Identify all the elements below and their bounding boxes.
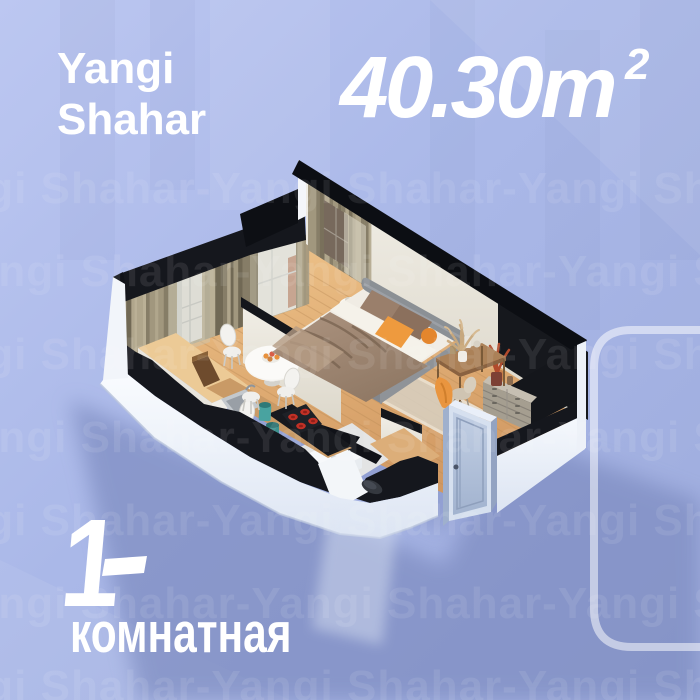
svg-text:2: 2	[624, 40, 650, 89]
svg-text:Shahar: Shahar	[57, 95, 206, 144]
svg-text:Yangi Shahar-Yangi Shahar-Yang: Yangi Shahar-Yangi Shahar-Yangi Shahar-Y…	[0, 247, 700, 296]
svg-text:Yangi: Yangi	[57, 44, 174, 93]
svg-text:Yangi Shahar-Yangi Shahar-Yang: Yangi Shahar-Yangi Shahar-Yangi Shahar-Y…	[0, 662, 700, 700]
svg-text:комнатная: комнатная	[70, 601, 292, 665]
svg-text:40.30m: 40.30m	[338, 39, 614, 136]
svg-text:Yangi Shahar-Yangi Shahar-Yang: Yangi Shahar-Yangi Shahar-Yangi Shahar-Y…	[0, 164, 700, 213]
